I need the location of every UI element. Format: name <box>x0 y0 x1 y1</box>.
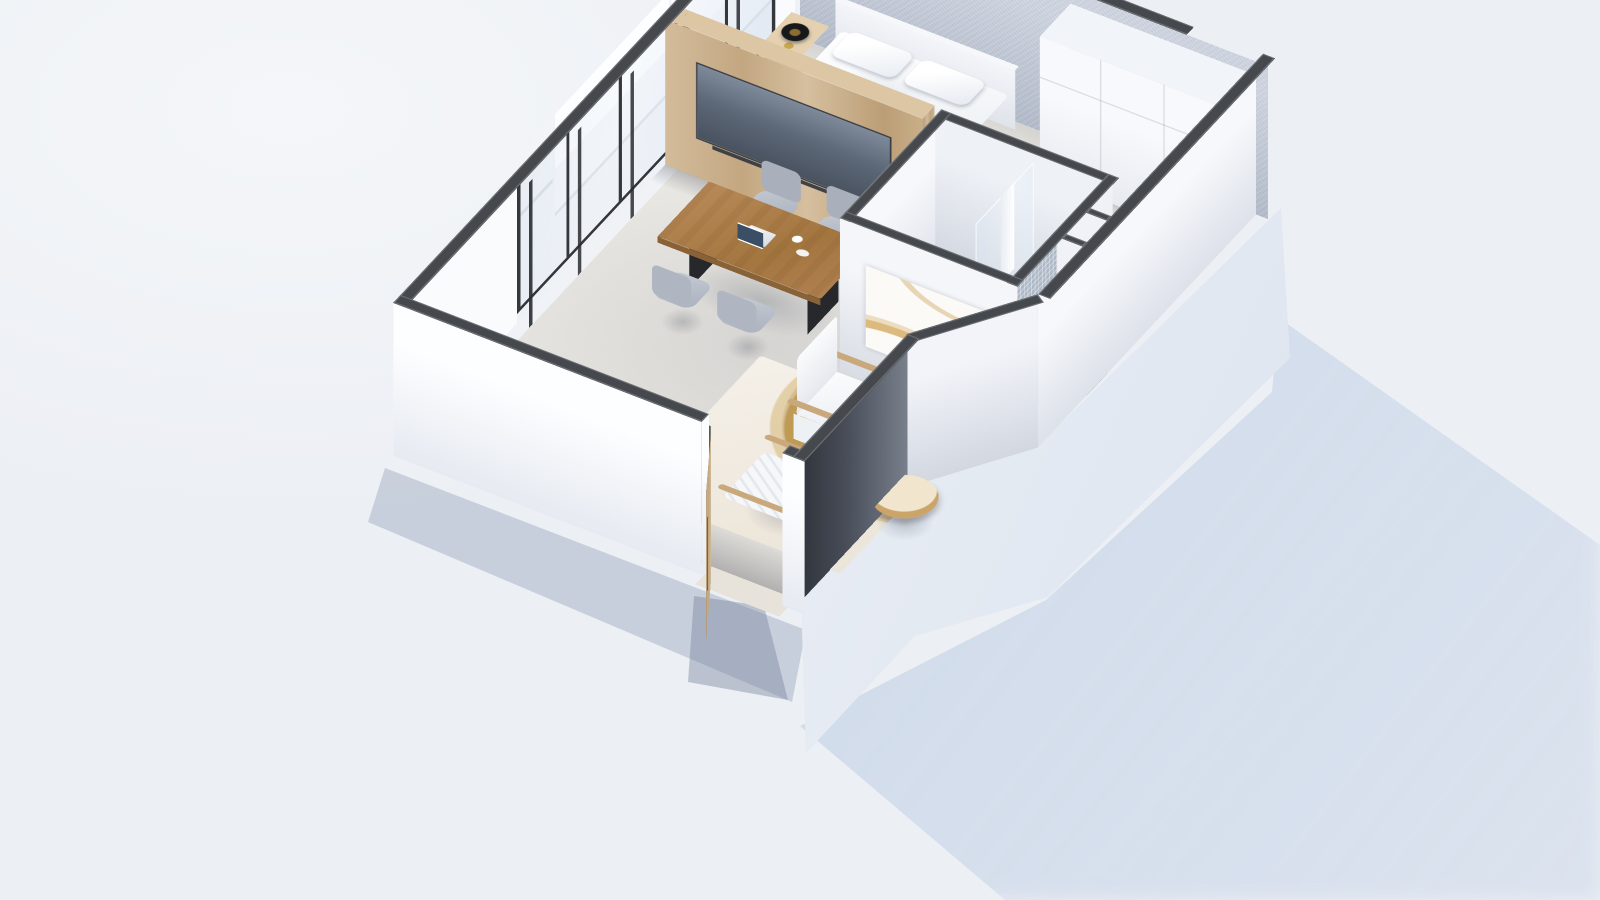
page: { "app": { "type": "3d-floor-plan-render… <box>0 0 1600 900</box>
hanging-towel <box>1001 183 1014 283</box>
apartment-3d-view <box>0 0 1600 900</box>
sw-wall-exterior-right <box>782 453 804 615</box>
